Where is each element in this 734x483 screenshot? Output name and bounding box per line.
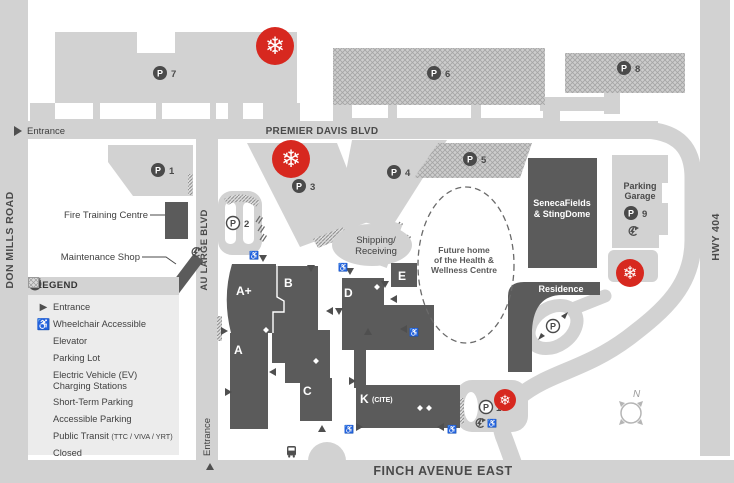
wheelchair-icon: ♿: [344, 424, 354, 434]
residence-loop-stub: [575, 296, 605, 308]
svg-text:Future home: Future home: [438, 245, 490, 255]
legend-item-closed: Closed: [28, 445, 179, 462]
wheelchair-icon: ♿: [338, 262, 348, 272]
legend-title: LEGEND: [28, 277, 179, 295]
fire-training-centre-label: Fire Training Centre: [64, 210, 165, 221]
bus-loop: [308, 442, 346, 461]
svg-text:Wellness Centre: Wellness Centre: [431, 265, 497, 275]
driveway-strip-p6: [333, 103, 560, 122]
hwy-404-label: HWY 404: [710, 213, 722, 261]
legend-item-transit: Public Transit (TTC / VIVA / YRT): [28, 428, 179, 445]
p-symbol: P: [431, 69, 437, 79]
legend-label: Accessible Parking: [53, 414, 132, 425]
future-home-label: Future home of the Health & Wellness Cen…: [431, 245, 497, 275]
entrance-text: Entrance: [202, 418, 213, 456]
snowflake-icon: ❄: [499, 392, 511, 408]
marker-p7: P 7: [153, 66, 176, 80]
road-au-large: [196, 139, 218, 460]
legend-label: Entrance: [53, 302, 90, 313]
p-symbol: P: [155, 166, 161, 176]
p-symbol: P: [391, 168, 397, 178]
building-k-suffix-label: (CITE): [372, 397, 393, 404]
building-e-label: E: [398, 269, 406, 283]
legend-item-parking-lot: P Parking Lot: [28, 350, 179, 367]
p-number: 1: [169, 166, 175, 177]
parking-lot-p1: [108, 145, 193, 196]
residence-label: Residence: [538, 284, 583, 294]
finch-avenue-label: FINCH AVENUE EAST: [373, 464, 512, 478]
legend-label-suffix: (TTC / VIVA / YRT): [111, 432, 172, 441]
snowflake-icon: ❄: [265, 33, 285, 60]
marker-p3: P 3: [292, 179, 315, 193]
p-symbol: P: [550, 322, 556, 332]
entrance-icon: [318, 425, 326, 432]
svg-text:SenecaFields: SenecaFields: [533, 198, 591, 208]
wheelchair-icon: ♿: [409, 327, 419, 337]
closed-marker: ❄: [616, 259, 644, 287]
arrow-icon: [561, 312, 568, 319]
svg-text:Maintenance Shop: Maintenance Shop: [61, 252, 140, 263]
closed-marker: ❄: [256, 27, 294, 65]
wheelchair-icon: ♿: [34, 318, 53, 331]
building-a-plus: [227, 264, 276, 333]
svg-text:Parking: Parking: [623, 181, 656, 191]
p-symbol: P: [230, 219, 236, 229]
shipping-receiving-label: Shipping/ Receiving: [355, 235, 397, 257]
p-number: 6: [445, 69, 450, 80]
p-symbol: P: [467, 155, 473, 165]
svg-text:of the Health &: of the Health &: [434, 255, 494, 265]
legend-label: Elevator: [53, 336, 87, 347]
marker-p2-short-term: P 2: [227, 217, 250, 231]
wheelchair-icon: ♿: [447, 424, 457, 434]
legend-label: Short-Term Parking: [53, 397, 133, 408]
driveway-p8: [540, 92, 620, 125]
compass: N: [619, 389, 643, 425]
p-number: 8: [635, 64, 640, 75]
snowflake-icon: ❄: [622, 263, 637, 283]
entrance-text: Entrance: [27, 126, 65, 137]
svg-text:Garage: Garage: [624, 191, 655, 201]
p-number: 5: [481, 155, 487, 166]
entrance-icon: [335, 308, 343, 315]
bus-icon: [287, 446, 296, 458]
p-number: 2: [244, 219, 249, 230]
svg-text:Shipping/: Shipping/: [356, 235, 396, 246]
building-k-label: K: [360, 392, 369, 406]
p1-accessible-strip: [188, 174, 193, 195]
closed-marker: ❄: [494, 389, 516, 411]
arrow-icon: [538, 333, 545, 340]
entrance-icon: ▶: [34, 302, 53, 313]
snowflake-icon: ❄: [281, 146, 301, 173]
p-symbol: P: [483, 403, 489, 413]
entrance-icon: [326, 307, 333, 315]
wheelchair-icon: ♿: [487, 418, 497, 428]
au-large-blvd-label: AU LARGE BLVD: [199, 209, 210, 290]
p-symbol: P: [157, 69, 163, 79]
marker-p8: P 8: [617, 61, 640, 75]
maintenance-shop-label: Maintenance Shop: [61, 252, 176, 264]
building-b-label: B: [284, 276, 293, 290]
building-k-link: [354, 348, 366, 388]
p-symbol: P: [621, 64, 627, 74]
marker-p6: P 6: [427, 66, 450, 80]
campus-map: ♿ ♿ ♿ ♿ ♿ ♿ P 7 P 1 P 3 P 4 P: [0, 0, 734, 483]
p-symbol: P: [296, 182, 302, 192]
p-number: 9: [642, 209, 647, 220]
road-finch: [0, 460, 734, 483]
legend-label: Public Transit: [53, 431, 109, 441]
svg-text:& StingDome: & StingDome: [534, 209, 591, 219]
building-d-label: D: [344, 286, 353, 300]
closed-marker: ❄: [272, 140, 310, 178]
p-number: 7: [171, 69, 176, 80]
don-mills-road-label: DON MILLS ROAD: [4, 191, 16, 288]
svg-text:Fire Training Centre: Fire Training Centre: [64, 210, 148, 221]
wheelchair-icon: ♿: [249, 250, 259, 260]
entrance-icon: [269, 368, 276, 376]
legend: LEGEND ▶ Entrance ♿ Wheelchair Accessibl…: [28, 277, 179, 455]
building-k: [356, 385, 460, 428]
entrance-icon: [259, 255, 267, 262]
driveway-strip-p7: [30, 103, 300, 122]
marker-p9: P 9: [624, 206, 647, 220]
p-number: 3: [310, 182, 315, 193]
entrance-icon: [390, 295, 397, 303]
compass-north-label: N: [633, 389, 641, 400]
legend-item-ev: Electric Vehicle (EV) Charging Stations: [28, 367, 179, 394]
p-symbol: P: [628, 209, 634, 219]
legend-item-entrance: ▶ Entrance: [28, 299, 179, 316]
legend-item-short-term: P Short-Term Parking: [28, 394, 179, 411]
legend-item-elevator: Elevator: [28, 333, 179, 350]
parking-lot-p4: [338, 140, 447, 230]
fire-training-centre-building: [165, 202, 188, 239]
legend-item-accessible: Accessible Parking: [28, 411, 179, 428]
building-a-plus-label: A+: [236, 284, 252, 298]
legend-label: Closed: [53, 448, 82, 459]
parking-garage-building: [612, 155, 668, 248]
p-number: 4: [405, 168, 411, 179]
svg-text:Receiving: Receiving: [355, 246, 397, 257]
legend-label: Electric Vehicle (EV): [53, 370, 137, 381]
parking-garage-label: Parking Garage: [623, 181, 656, 201]
legend-item-wheelchair: ♿ Wheelchair Accessible: [28, 316, 179, 333]
building-mid: [285, 330, 330, 383]
senecafields-label: SenecaFields & StingDome: [533, 198, 591, 219]
building-a-label: A: [234, 343, 243, 357]
building-c-label: C: [303, 384, 312, 398]
legend-label: Charging Stations: [53, 381, 137, 392]
legend-label: Parking Lot: [53, 353, 100, 364]
entrance-icon: [221, 327, 228, 335]
premier-davis-blvd-label: PREMIER DAVIS BLVD: [266, 126, 379, 137]
legend-label: Wheelchair Accessible: [53, 319, 146, 330]
